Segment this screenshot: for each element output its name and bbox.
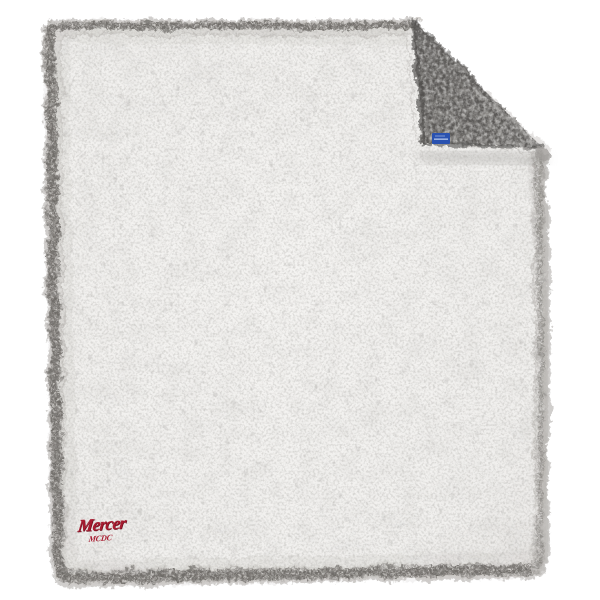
- svg-text:MCDC: MCDC: [87, 533, 113, 544]
- svg-text:Mercer: Mercer: [76, 512, 128, 535]
